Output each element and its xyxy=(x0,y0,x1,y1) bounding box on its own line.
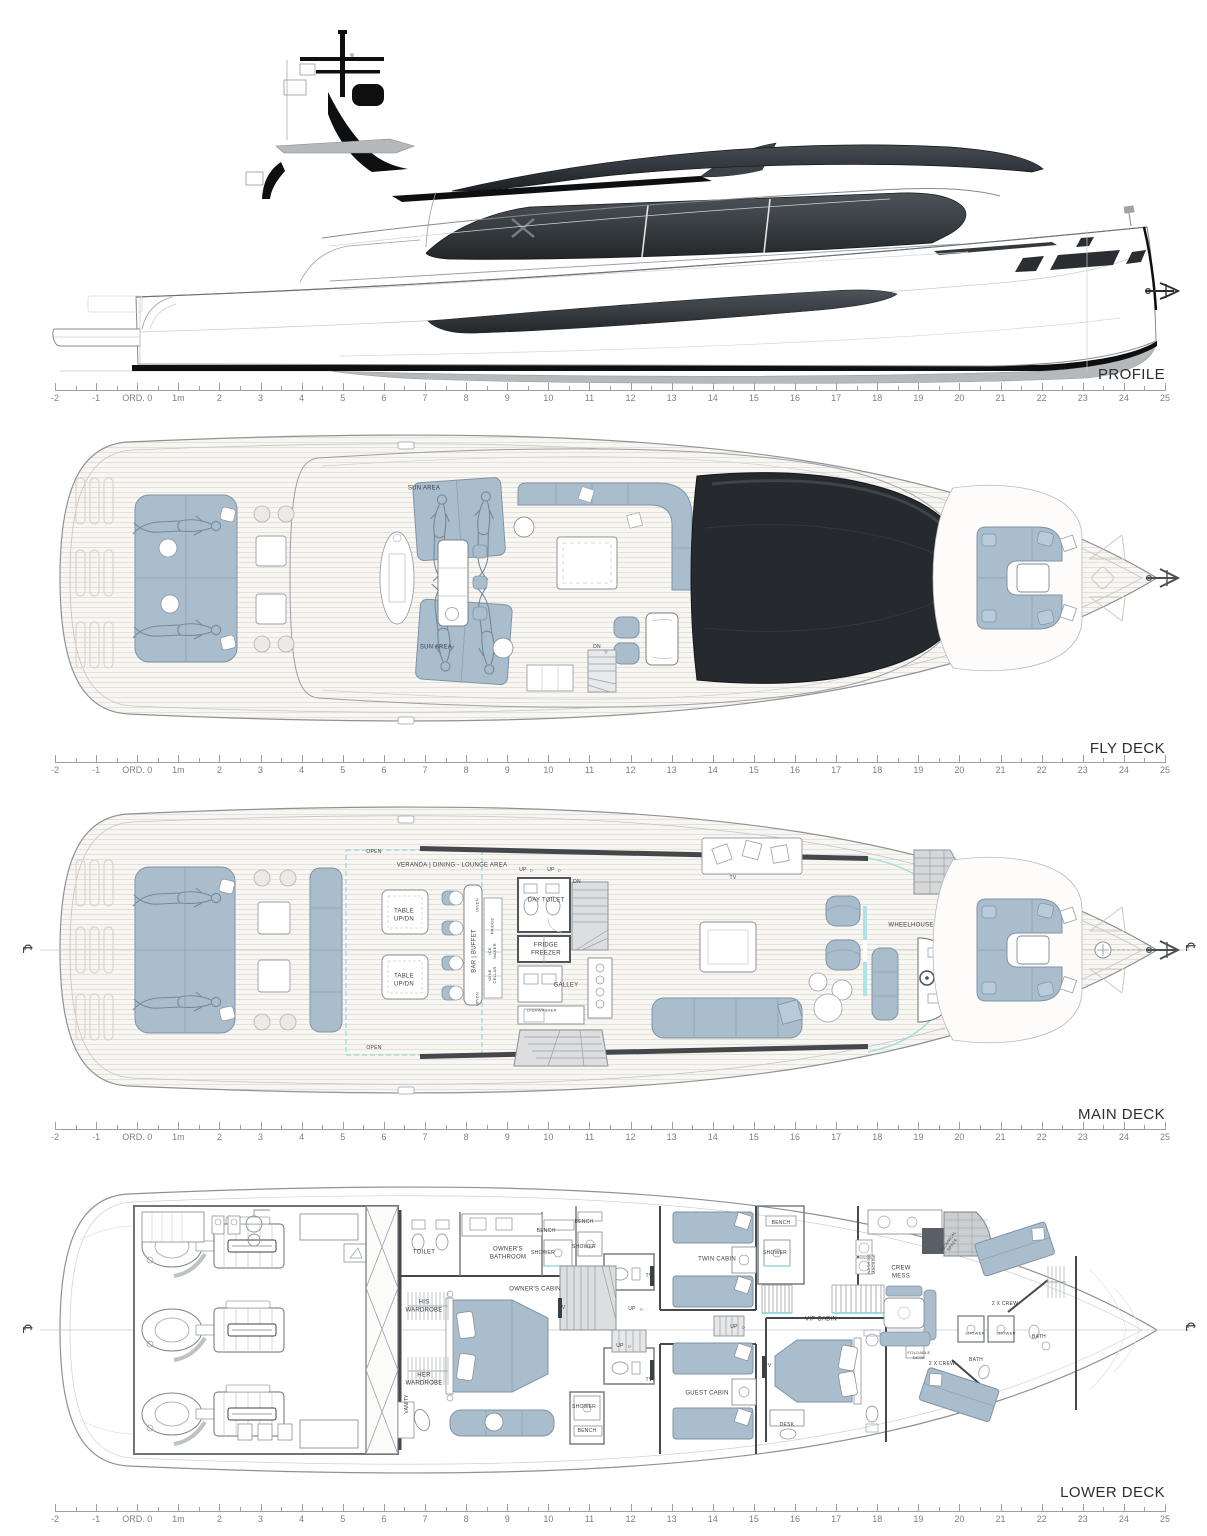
ruler-label: 18 xyxy=(872,393,882,403)
profile-superstructure xyxy=(322,143,1043,259)
ruler-label: 25 xyxy=(1160,393,1170,403)
main-deck-ruler: -2-1ORD. 01m2345678910111213141516171819… xyxy=(55,1119,1165,1145)
fly-deck-ruler: -2-1ORD. 01m2345678910111213141516171819… xyxy=(55,752,1165,778)
ruler-label: 7 xyxy=(422,393,427,403)
ruler-label: 19 xyxy=(913,1514,923,1524)
ruler-label: 22 xyxy=(1037,765,1047,775)
ruler-label: 20 xyxy=(954,1514,964,1524)
ruler-label: 23 xyxy=(1078,765,1088,775)
ruler-label: 3 xyxy=(258,765,263,775)
ruler-label: 12 xyxy=(626,1514,636,1524)
ruler-label: 18 xyxy=(872,1132,882,1142)
ruler-label: 3 xyxy=(258,1132,263,1142)
ruler-label: 14 xyxy=(708,1132,718,1142)
ruler-label: 14 xyxy=(708,393,718,403)
ruler-label: 18 xyxy=(872,1514,882,1524)
crew-fridge xyxy=(922,1228,946,1254)
ruler-label: 21 xyxy=(996,765,1006,775)
ruler-label: 1m xyxy=(172,1132,185,1142)
ruler-label: 15 xyxy=(749,1132,759,1142)
ruler-label: 5 xyxy=(340,393,345,403)
ruler-label: 21 xyxy=(996,1132,1006,1142)
ruler-label: 11 xyxy=(585,1132,594,1142)
ruler-label: 7 xyxy=(422,765,427,775)
ruler-label: 1m xyxy=(172,393,185,403)
ruler-label: 9 xyxy=(505,393,510,403)
ruler-label: 7 xyxy=(422,1132,427,1142)
yacht-general-arrangement: SUN AREASUN AREADN▽ ℄℄OPENOPENVERANDA | … xyxy=(0,0,1207,1536)
ruler-label: 24 xyxy=(1119,1132,1129,1142)
ruler-label: 22 xyxy=(1037,1132,1047,1142)
ruler-label: 12 xyxy=(626,765,636,775)
owner-tv xyxy=(558,1298,562,1318)
lower-deck-title: LOWER DECK xyxy=(1060,1484,1165,1501)
ruler-label: 6 xyxy=(381,393,386,403)
ruler-label: 4 xyxy=(299,765,304,775)
ruler-label: 5 xyxy=(340,1514,345,1524)
ruler-label: 13 xyxy=(667,393,677,403)
lower-deck-ruler: -2-1ORD. 01m2345678910111213141516171819… xyxy=(55,1501,1165,1527)
ruler-label: 22 xyxy=(1037,1514,1047,1524)
ruler-label: 3 xyxy=(258,393,263,403)
ruler-label: -1 xyxy=(92,393,100,403)
anchor-icon xyxy=(1146,569,1178,587)
ruler-label: 5 xyxy=(340,765,345,775)
ruler-label: 16 xyxy=(790,393,800,403)
ruler-label: 24 xyxy=(1119,1514,1129,1524)
ruler-label: -2 xyxy=(51,765,59,775)
ruler-label: 17 xyxy=(831,765,841,775)
ruler-label: ORD. 0 xyxy=(122,393,152,403)
ruler-label: 20 xyxy=(954,1132,964,1142)
ruler-label: 21 xyxy=(996,1514,1006,1524)
fly-aft-sunpad xyxy=(133,495,237,662)
ruler-label: 8 xyxy=(464,1132,469,1142)
ruler-label: -2 xyxy=(51,1132,59,1142)
ruler-label: 1m xyxy=(172,1514,185,1524)
lower-deck-plan xyxy=(0,1170,1207,1500)
ruler-label: 11 xyxy=(585,1514,594,1524)
profile-mast xyxy=(246,30,414,199)
ruler-label: 15 xyxy=(749,393,759,403)
ruler-label: 15 xyxy=(749,1514,759,1524)
ruler-label: 2 xyxy=(217,1132,222,1142)
ruler-label: 10 xyxy=(543,765,553,775)
ruler-label: 19 xyxy=(913,1132,923,1142)
ruler-label: -2 xyxy=(51,393,59,403)
ruler-label: 25 xyxy=(1160,765,1170,775)
ruler-label: 22 xyxy=(1037,393,1047,403)
ruler-label: 14 xyxy=(708,1514,718,1524)
ruler-label: 9 xyxy=(505,1132,510,1142)
fly-bar xyxy=(438,540,487,626)
ruler-label: 10 xyxy=(543,393,553,403)
ruler-label: 16 xyxy=(790,1514,800,1524)
ruler-label: 9 xyxy=(505,765,510,775)
ruler-label: 23 xyxy=(1078,1132,1088,1142)
ruler-label: 19 xyxy=(913,765,923,775)
ruler-label: 2 xyxy=(217,393,222,403)
ruler-label: 12 xyxy=(626,1132,636,1142)
profile-drawing xyxy=(0,0,1207,385)
radar-dome xyxy=(352,84,384,106)
ruler-label: -1 xyxy=(92,1132,100,1142)
ruler-label: 2 xyxy=(217,1514,222,1524)
stairs-down xyxy=(572,882,608,950)
ruler-label: 4 xyxy=(299,393,304,403)
ruler-label: 11 xyxy=(585,393,594,403)
ruler-label: 24 xyxy=(1119,765,1129,775)
ruler-label: 20 xyxy=(954,765,964,775)
ruler-label: 15 xyxy=(749,765,759,775)
ruler-label: 3 xyxy=(258,1514,263,1524)
ruler-label: 4 xyxy=(299,1514,304,1524)
ruler-label: -2 xyxy=(51,1514,59,1524)
ruler-label: 10 xyxy=(543,1514,553,1524)
ruler-label: 24 xyxy=(1119,393,1129,403)
ruler-label: 6 xyxy=(381,765,386,775)
vip-bed xyxy=(775,1340,852,1402)
ruler-label: ORD. 0 xyxy=(122,765,152,775)
ruler-label: 9 xyxy=(505,1514,510,1524)
ruler-label: 23 xyxy=(1078,393,1088,403)
ruler-label: 6 xyxy=(381,1132,386,1142)
ruler-label: 7 xyxy=(422,1514,427,1524)
deckhouse-glass xyxy=(426,193,966,259)
ruler-label: 14 xyxy=(708,765,718,775)
fly-deck-plan xyxy=(0,418,1207,748)
ruler-label: 1m xyxy=(172,765,185,775)
profile-ruler: -2-1ORD. 01m2345678910111213141516171819… xyxy=(55,380,1165,406)
ruler-label: 25 xyxy=(1160,1514,1170,1524)
vip-tv xyxy=(762,1356,766,1378)
ruler-label: 21 xyxy=(996,393,1006,403)
engine-room xyxy=(134,1206,398,1454)
ruler-label: 18 xyxy=(872,765,882,775)
ruler-label: ORD. 0 xyxy=(122,1514,152,1524)
ruler-label: 16 xyxy=(790,765,800,775)
anchor-icon xyxy=(1146,941,1178,959)
ruler-label: 17 xyxy=(831,1132,841,1142)
ruler-label: 4 xyxy=(299,1132,304,1142)
ruler-label: 23 xyxy=(1078,1514,1088,1524)
ruler-label: 8 xyxy=(464,765,469,775)
ruler-label: 2 xyxy=(217,765,222,775)
ruler-label: 17 xyxy=(831,393,841,403)
ruler-label: 6 xyxy=(381,1514,386,1524)
ruler-label: 19 xyxy=(913,393,923,403)
ruler-label: ORD. 0 xyxy=(122,1132,152,1142)
ruler-label: 13 xyxy=(667,1514,677,1524)
ruler-label: 12 xyxy=(626,393,636,403)
ruler-label: 8 xyxy=(464,393,469,403)
ruler-label: 17 xyxy=(831,1514,841,1524)
ruler-label: 8 xyxy=(464,1514,469,1524)
aft-stairs xyxy=(514,1030,608,1066)
ruler-label: 13 xyxy=(667,765,677,775)
ruler-label: 25 xyxy=(1160,1132,1170,1142)
ruler-label: -1 xyxy=(92,765,100,775)
helm-settee xyxy=(872,948,898,1020)
ruler-label: 13 xyxy=(667,1132,677,1142)
ruler-label: 16 xyxy=(790,1132,800,1142)
ruler-label: 11 xyxy=(585,765,594,775)
ruler-label: 20 xyxy=(954,393,964,403)
ruler-label: -1 xyxy=(92,1514,100,1524)
ruler-label: 5 xyxy=(340,1132,345,1142)
ruler-label: 10 xyxy=(543,1132,553,1142)
main-deck-plan xyxy=(0,790,1207,1120)
